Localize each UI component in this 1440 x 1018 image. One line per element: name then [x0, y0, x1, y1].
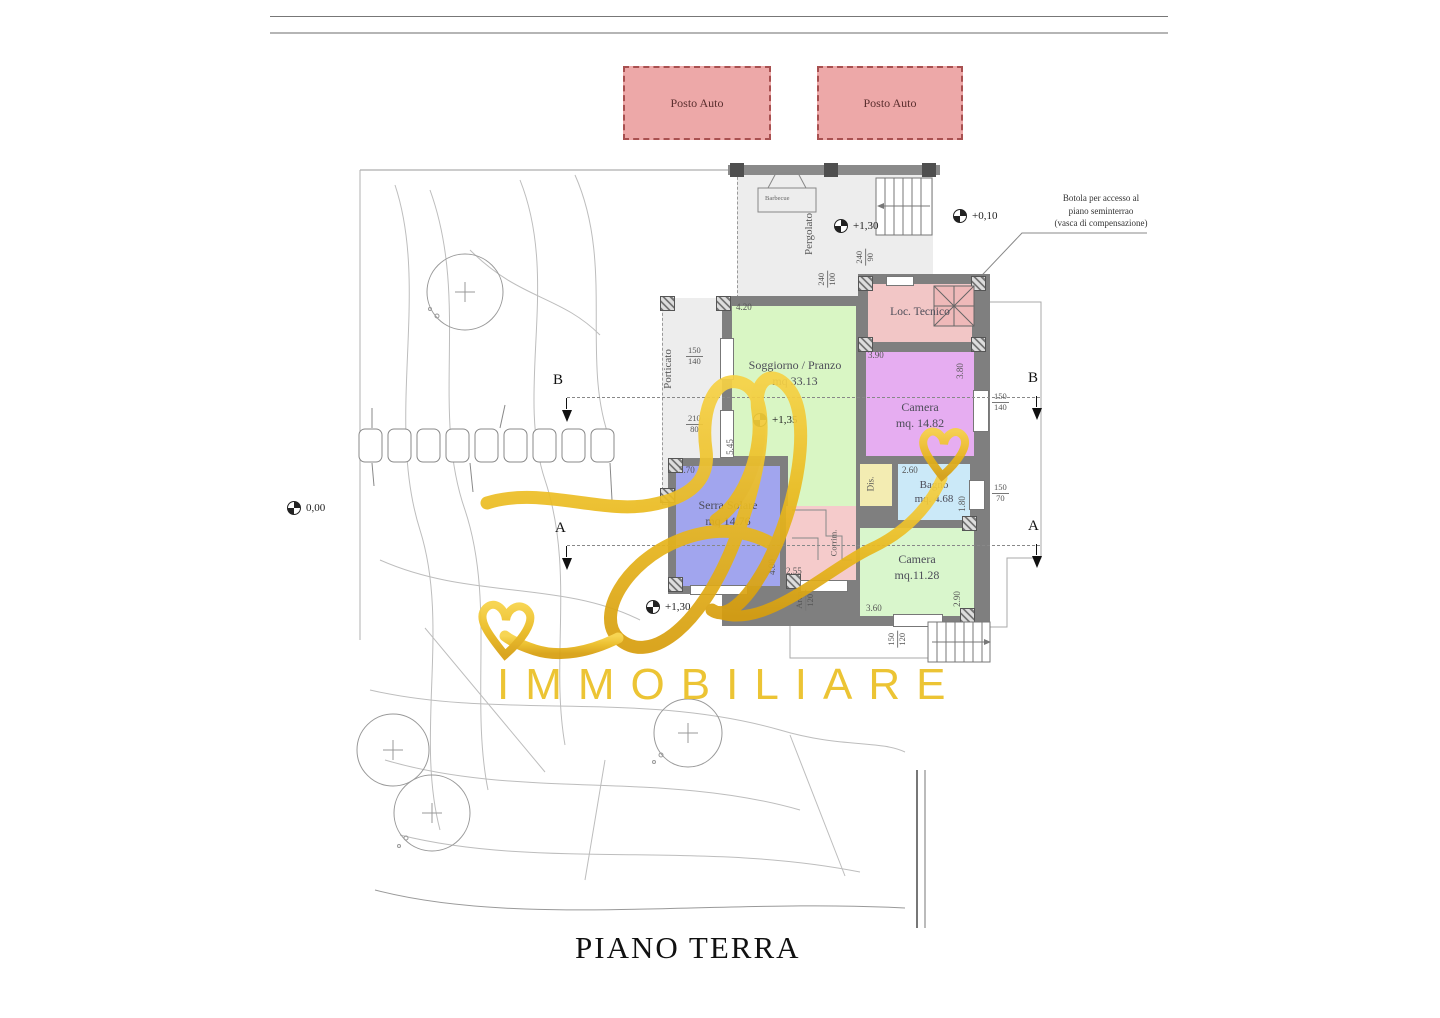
section-b-right-stem	[1036, 396, 1037, 407]
opening-dim-240-100: 240100	[817, 271, 838, 288]
level-marker-soggiorno: +1,35	[752, 412, 797, 428]
dim-4-00: 4.00	[767, 559, 777, 575]
opening-dim-240-90: 24090	[855, 249, 876, 266]
camera1-area: mq. 14.82	[896, 416, 944, 430]
section-a-right-arrow	[1032, 556, 1042, 568]
window-serra	[690, 585, 748, 595]
botola-note-line3: (vasca di compensazione)	[1055, 218, 1148, 228]
arco-dim-120: Arco120	[795, 590, 816, 611]
botola-note-line2: piano seminterrao	[1069, 206, 1134, 216]
bagno-area: mq. 4.68	[915, 493, 954, 505]
porticato-label: Porticato	[662, 349, 674, 389]
room-soggiorno-ext	[788, 456, 856, 508]
pillar	[660, 296, 675, 311]
serra-name: Serra Solare	[699, 498, 758, 512]
botola-note: Botola per accesso al piano seminterrao …	[1040, 192, 1162, 230]
pergolato-post-2	[824, 163, 838, 177]
window-dim-150-140: 150140	[992, 392, 1009, 413]
section-b-right: B	[1028, 370, 1038, 387]
dim-2-60: 2.60	[902, 465, 918, 475]
retaining-wall	[917, 770, 925, 928]
serra-label: Serra Solare mq 14.76	[676, 498, 780, 529]
dim-3-80: 3.80	[955, 363, 965, 379]
section-b-left-arrow	[562, 410, 572, 422]
dim-5-45: 5.45	[725, 439, 735, 455]
dis-label: Dis.	[865, 477, 875, 492]
pillar	[858, 276, 873, 291]
window-porticato-150-140	[720, 338, 734, 380]
camera1-label: Camera mq. 14.82	[866, 400, 974, 431]
dim-3-60: 3.60	[866, 603, 882, 613]
level-marker-terrace: +0,10	[952, 208, 997, 224]
dim-5-70: 5.70	[679, 465, 695, 475]
window-dim-150-70: 15070	[992, 483, 1009, 504]
section-b-right-arrow	[1032, 408, 1042, 420]
soggiorno-label: Soggiorno / Pranzo mq 33.13	[733, 358, 857, 389]
section-a-right-stem	[1036, 544, 1037, 555]
section-a-left: A	[555, 520, 566, 537]
level-symbol-icon	[833, 218, 849, 234]
pillar	[786, 574, 801, 589]
section-b-left-stem	[566, 398, 567, 409]
camera1-name: Camera	[901, 400, 938, 414]
corrimano-label: Corrim.	[828, 530, 838, 557]
bagno-name: Bagno	[920, 479, 949, 491]
dim-4-20: 4.20	[736, 302, 752, 312]
section-a-right: A	[1028, 518, 1039, 535]
level-marker-garden-path: +1,30	[645, 599, 690, 615]
pillar	[962, 516, 977, 531]
section-line-b	[567, 397, 1040, 398]
serra-area: mq 14.76	[705, 514, 750, 528]
level-marker-ground: 0,00	[286, 500, 325, 516]
section-b-left: B	[553, 372, 563, 389]
soggiorno-area: mq 33.13	[772, 374, 817, 388]
dim-3-90: 3.90	[868, 350, 884, 360]
dim-1-80: 1.80	[957, 496, 967, 512]
pergolato-post-3	[922, 163, 936, 177]
tree-2	[357, 714, 429, 786]
level-symbol-icon	[286, 500, 302, 516]
section-line-a	[567, 545, 1040, 546]
pillar	[668, 577, 683, 592]
window-bagno-150-70	[969, 480, 985, 510]
level-symbol-icon	[645, 599, 661, 615]
pillar	[960, 608, 975, 623]
pillar	[971, 337, 986, 352]
pillar	[716, 296, 731, 311]
pillar	[660, 488, 675, 503]
botola-leader-line	[967, 233, 1147, 291]
window-camera2-150-120	[893, 614, 943, 627]
dim-2-55: 2.55	[786, 566, 802, 576]
pergolato-post-1	[730, 163, 744, 177]
pillar	[971, 276, 986, 291]
window-loc-tecnico	[886, 276, 914, 286]
sheet-title: PIANO TERRA	[575, 930, 801, 966]
section-a-left-stem	[566, 546, 567, 557]
level-marker-pergolato: +1,30	[833, 218, 878, 234]
door-dim-210-80: 21080	[686, 414, 703, 435]
dim-2-90: 2.90	[952, 591, 962, 607]
level-symbol-icon	[752, 412, 768, 428]
terrace-outline-right	[988, 302, 1041, 627]
pergolato-label: Pergolato	[803, 213, 815, 255]
camera2-name: Camera	[898, 552, 935, 566]
soggiorno-name: Soggiorno / Pranzo	[749, 358, 842, 372]
level-symbol-icon	[952, 208, 968, 224]
camera2-label: Camera mq.11.28	[860, 552, 974, 583]
brand-wordmark: IMMOBILIARE	[497, 660, 962, 710]
loc-tecnico-label: Loc. Tecnico	[868, 305, 972, 320]
botola-note-line1: Botola per accesso al	[1063, 193, 1139, 203]
tree-1	[427, 254, 503, 330]
section-a-left-arrow	[562, 558, 572, 570]
window-dim-porticato: 150140	[686, 346, 703, 367]
stepping-stones	[359, 405, 614, 500]
barbecue-label: Barbecue	[765, 195, 790, 202]
floor-plan-sheet: Posto Auto Posto Auto	[0, 0, 1440, 1018]
window-dim-150-120: 150120	[887, 631, 908, 648]
camera2-area: mq.11.28	[895, 568, 940, 582]
